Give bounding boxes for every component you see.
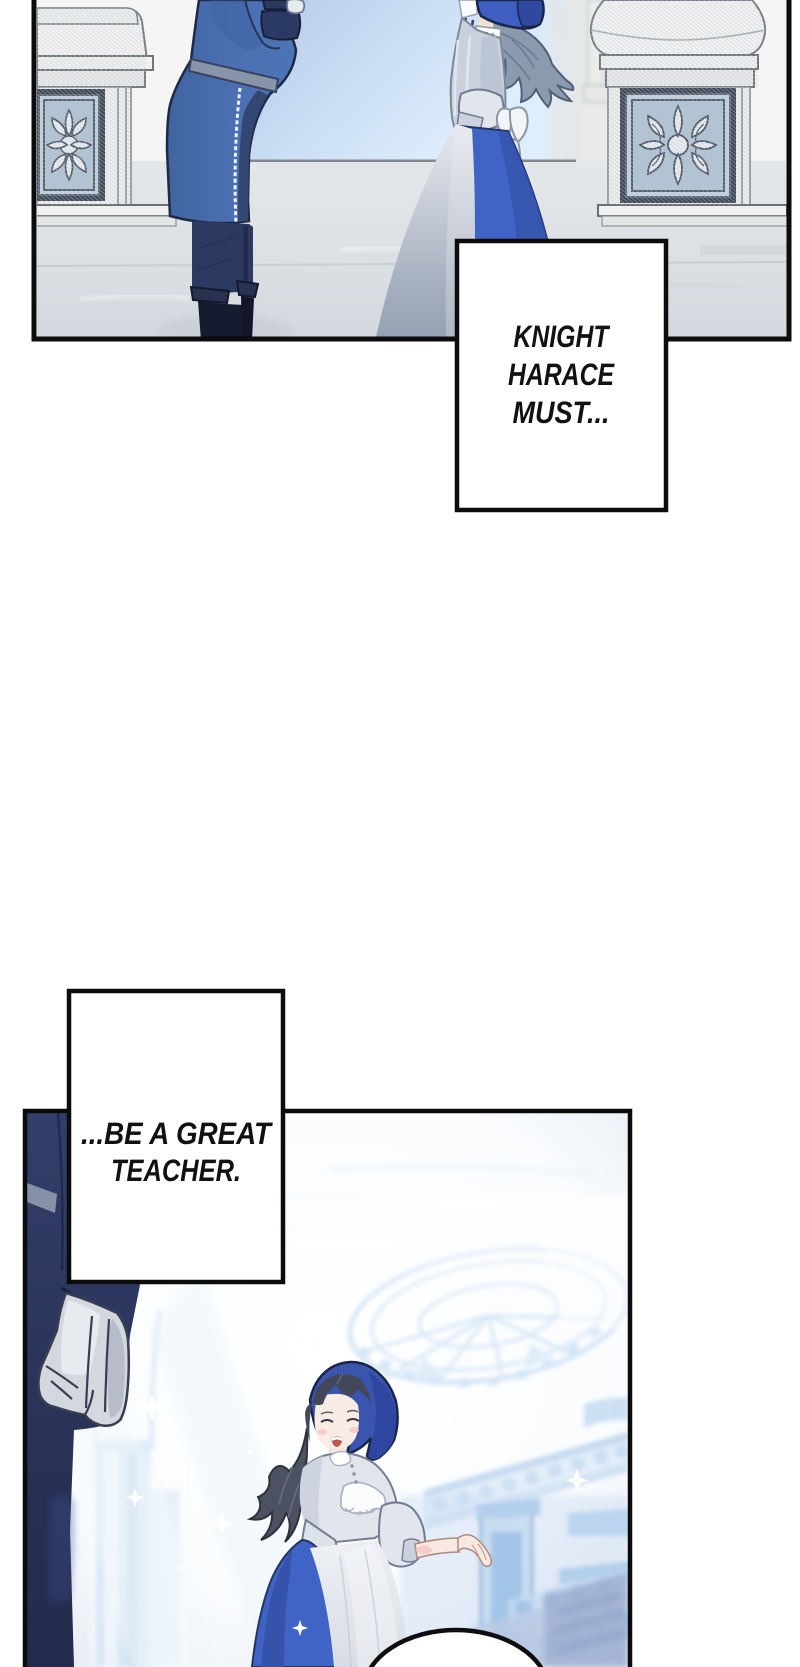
svg-text:KNIGHT: KNIGHT [514, 319, 611, 354]
svg-text:TEACHER.: TEACHER. [111, 1153, 241, 1188]
svg-text:MUST...: MUST... [513, 395, 610, 430]
svg-text:...BE A GREAT: ...BE A GREAT [81, 1116, 274, 1151]
svg-text:HARACE: HARACE [508, 357, 615, 392]
